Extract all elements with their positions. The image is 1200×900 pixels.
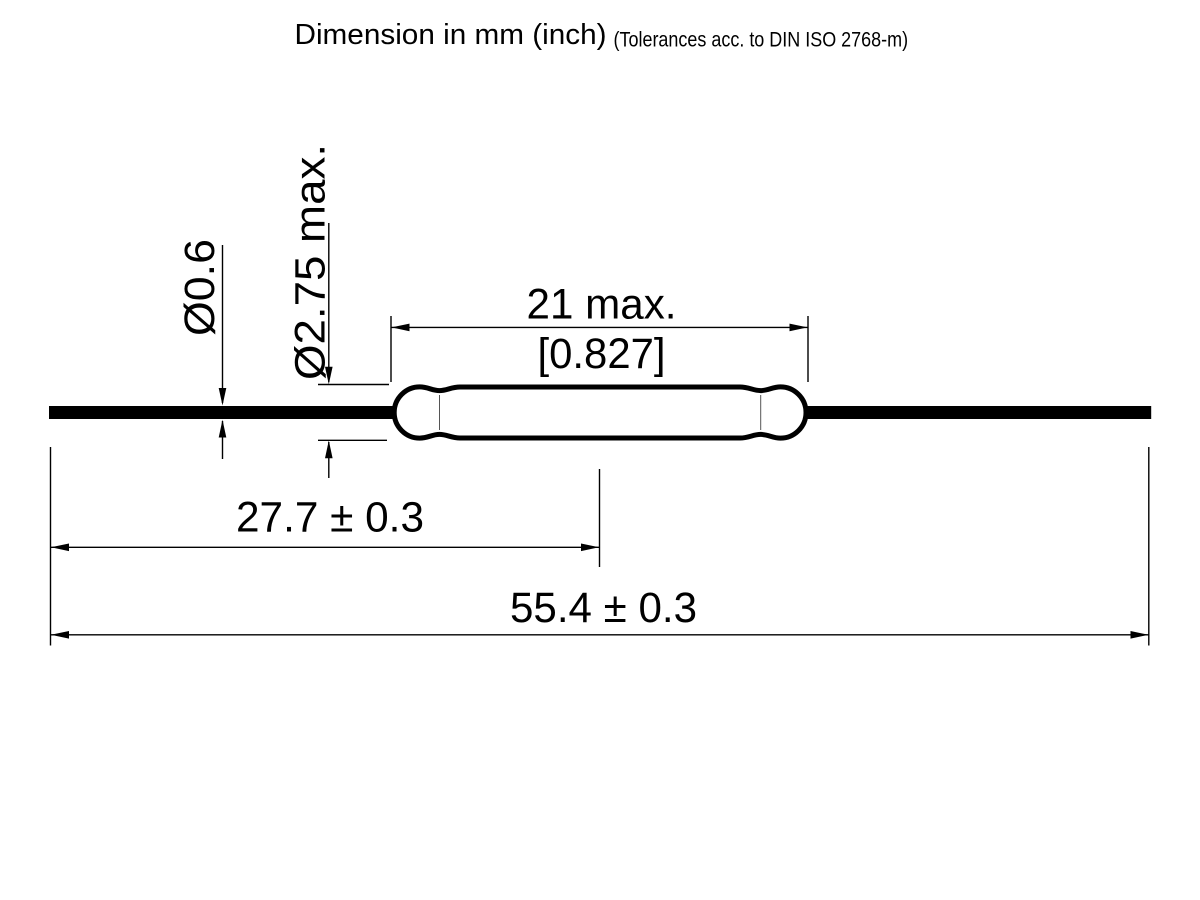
svg-text:Ø2.75 max.: Ø2.75 max. <box>287 144 335 380</box>
svg-text:55.4 ± 0.3: 55.4 ± 0.3 <box>510 584 697 632</box>
svg-text:Ø0.6: Ø0.6 <box>176 239 224 336</box>
svg-text:27.7 ± 0.3: 27.7 ± 0.3 <box>236 494 424 542</box>
svg-text:Dimension in mm (inch): Dimension in mm (inch) <box>295 19 607 51</box>
svg-text:[0.827]: [0.827] <box>538 330 666 378</box>
svg-text:21 max.: 21 max. <box>527 281 677 329</box>
svg-text:(Tolerances acc. to DIN ISO 27: (Tolerances acc. to DIN ISO 2768-m) <box>614 27 909 52</box>
